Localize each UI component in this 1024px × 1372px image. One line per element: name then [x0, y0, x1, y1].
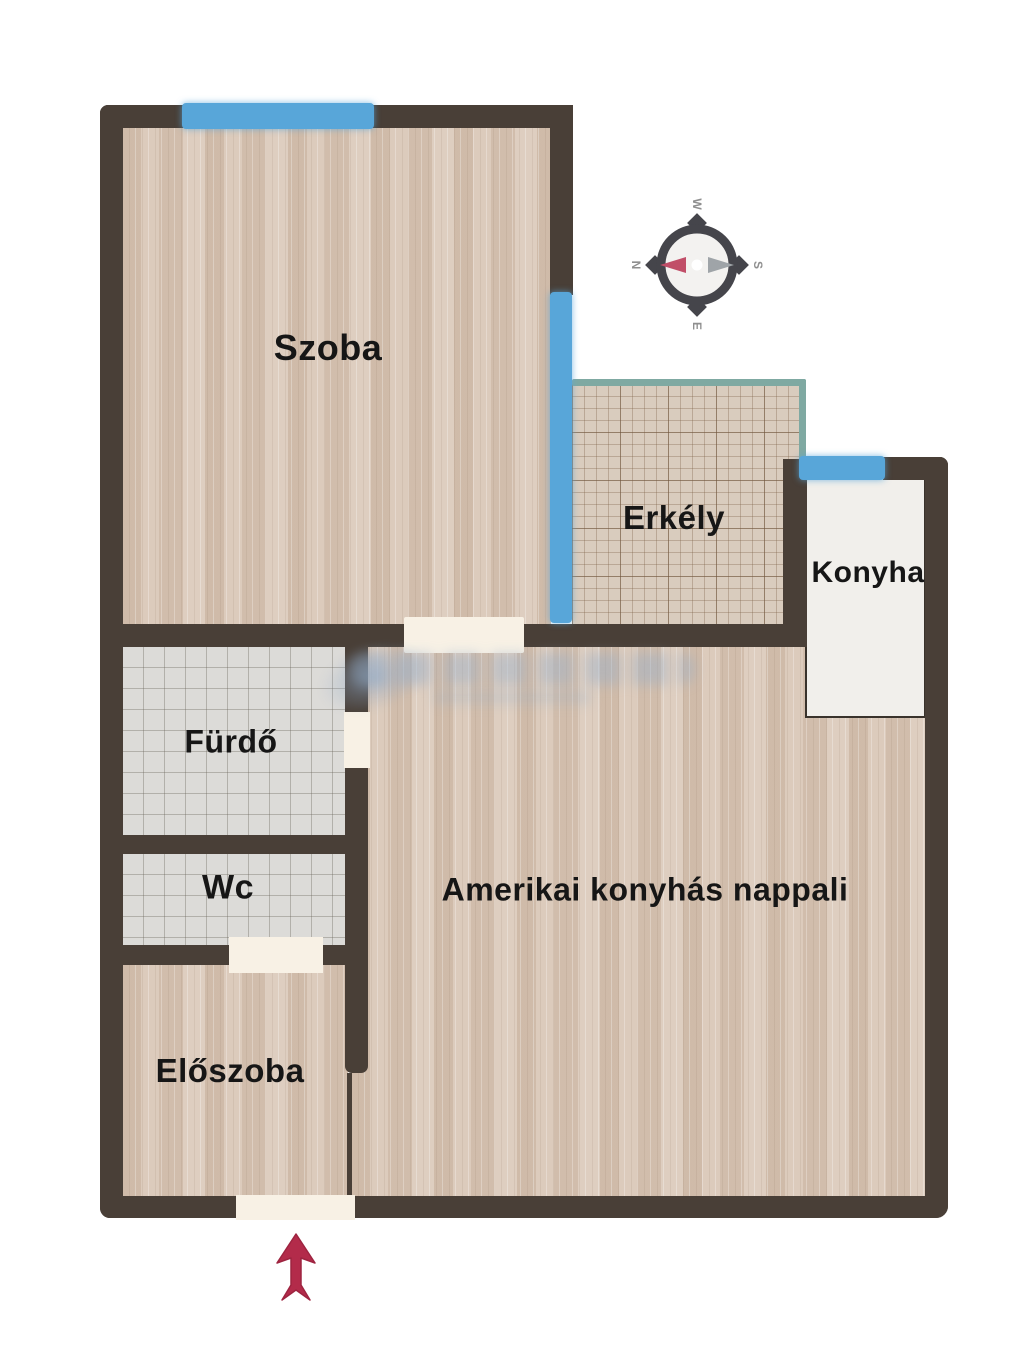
szoba-floor	[122, 127, 551, 626]
nappali-label: Amerikai konyhás nappali	[442, 872, 849, 909]
furdo-label: Fürdő	[184, 724, 277, 761]
door-furdo	[344, 712, 370, 768]
konyha-window	[799, 456, 885, 480]
door-wc	[229, 937, 323, 973]
compass-label-top: W	[690, 198, 704, 210]
wall-right	[925, 457, 948, 1218]
door-szoba-nappali	[404, 617, 524, 653]
wall-left	[100, 105, 123, 1218]
balcony-railing-right	[799, 379, 806, 464]
szoba-label: Szoba	[274, 327, 383, 369]
wall-bottom	[100, 1196, 948, 1218]
entrance-arrow-icon	[272, 1232, 320, 1306]
wc-label: Wc	[202, 869, 254, 908]
wall-passage-line	[347, 1073, 352, 1196]
floorplan-canvas: Szoba Erkély Konyha Fürdő Wc Előszoba Am…	[0, 0, 1024, 1372]
szoba-window-right	[550, 292, 572, 623]
konyha-label: Konyha	[811, 556, 924, 590]
compass-icon: W N S E	[622, 190, 772, 340]
compass-label-bottom: E	[690, 322, 704, 330]
compass-label-right: S	[751, 261, 765, 269]
wall-furdo-wc	[100, 835, 368, 854]
wall-szoba-right	[550, 105, 573, 295]
door-entrance	[236, 1195, 355, 1220]
nappali-floor	[351, 646, 925, 1197]
balcony-railing-top	[572, 379, 806, 386]
konyha-floor	[805, 477, 926, 718]
erkely-label: Erkély	[623, 499, 725, 537]
compass-label-left: N	[629, 261, 643, 270]
szoba-window-top	[182, 103, 374, 129]
wall-balcony-kitchen	[783, 459, 807, 647]
eloszoba-label: Előszoba	[156, 1052, 305, 1090]
entrance-arrow-shape	[277, 1234, 315, 1300]
compass-needle-pivot	[692, 260, 703, 271]
